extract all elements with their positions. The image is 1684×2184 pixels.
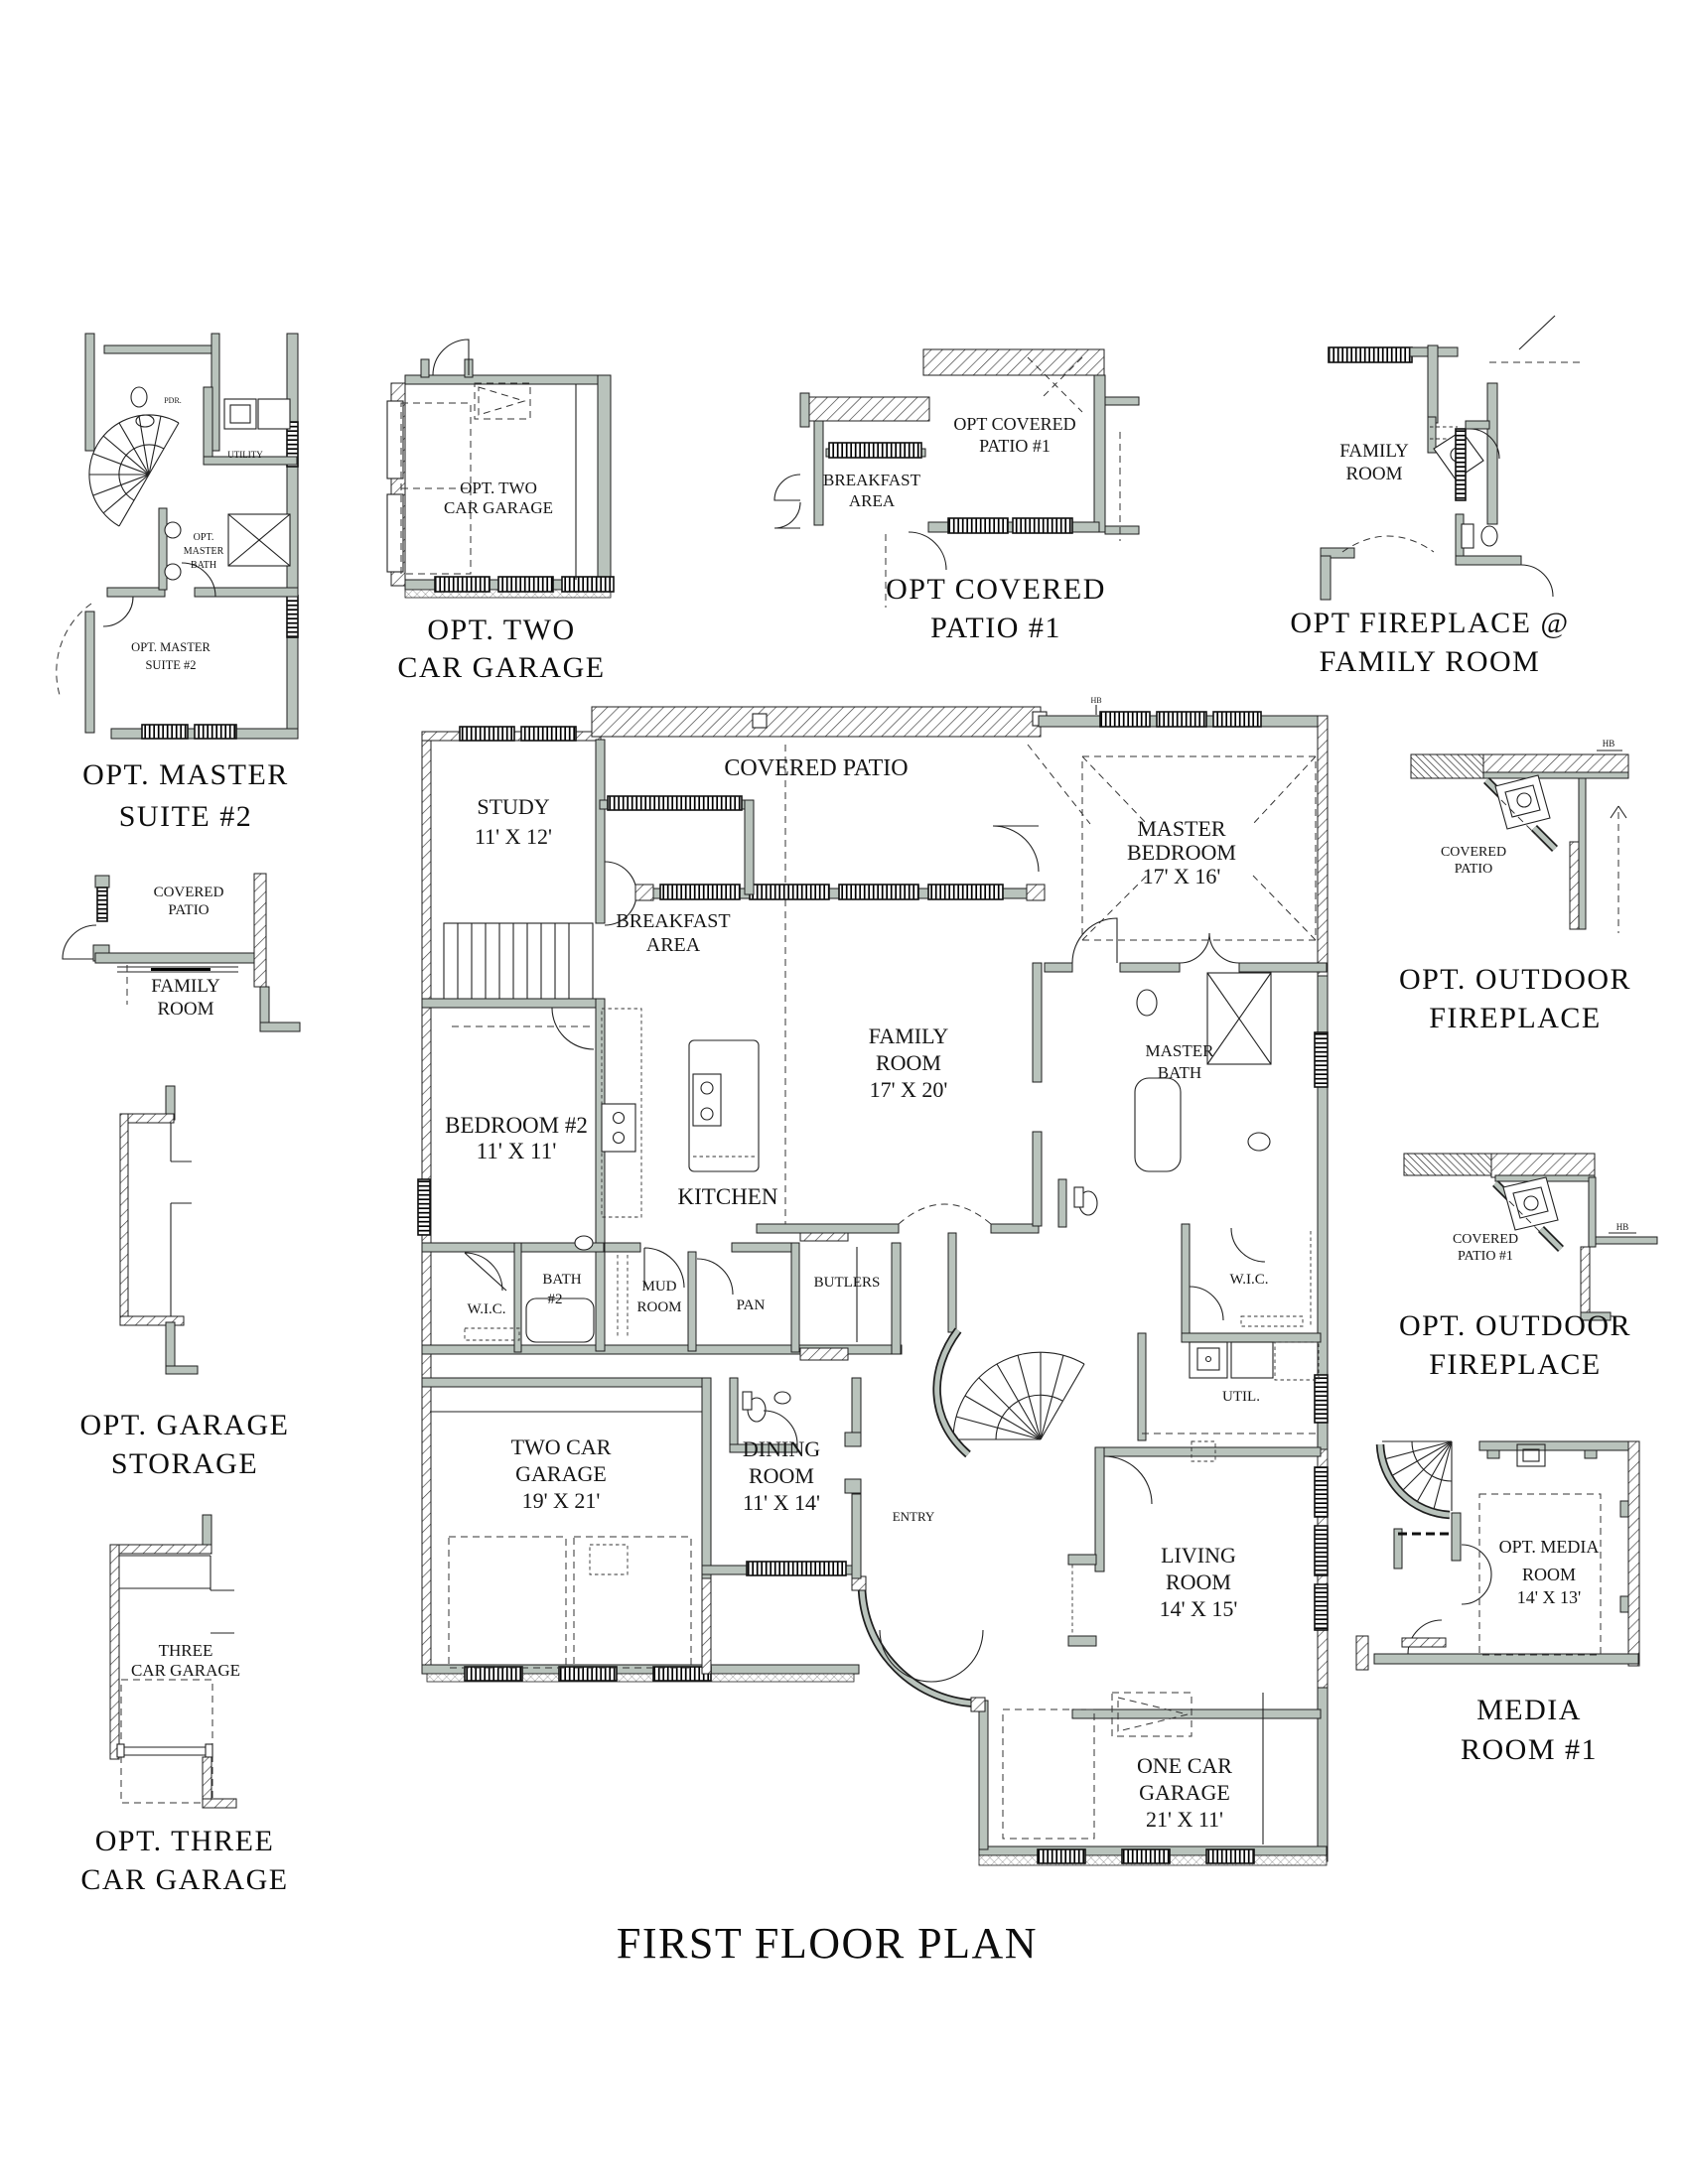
room-dims-opt-media-room: 14' X 13' bbox=[1517, 1587, 1582, 1607]
opt-two-car-garage-plan: OPT. TWO CAR GARAGE OPT. TWO CAR GARAGE bbox=[387, 340, 614, 684]
caption-opt-fireplace-family-room: FAMILY ROOM bbox=[1320, 645, 1541, 678]
room-label-three-car-garage: CAR GARAGE bbox=[131, 1661, 240, 1680]
room-label-wic: W.I.C. bbox=[1229, 1272, 1268, 1288]
caption-opt-outdoor-fireplace: FIREPLACE bbox=[1429, 1348, 1602, 1381]
opt-outdoor-fireplace-a-walls bbox=[1411, 751, 1628, 933]
covered-patio-family-room-plan: COVERED PATIO FAMILY ROOM bbox=[63, 874, 300, 1031]
floor-plan-sheet: PDR. UTILITY OPT. MASTER BATH OPT. MASTE… bbox=[0, 0, 1684, 2184]
room-label-mud-room: ROOM bbox=[636, 1299, 681, 1315]
room-label-two-car-garage: GARAGE bbox=[515, 1461, 607, 1486]
room-label-breakfast-area: AREA bbox=[849, 491, 896, 510]
room-label-butlers: BUTLERS bbox=[814, 1275, 881, 1291]
room-label-util: UTIL. bbox=[1222, 1389, 1260, 1405]
room-label-pdr: PDR. bbox=[164, 396, 182, 405]
room-label-wic: W.I.C. bbox=[467, 1301, 505, 1317]
room-label-opt-media-room: ROOM bbox=[1522, 1565, 1576, 1584]
room-label-opt-master-bath: BATH bbox=[191, 560, 216, 571]
room-label-one-car-garage: GARAGE bbox=[1139, 1780, 1230, 1805]
room-label-opt-two-car: CAR GARAGE bbox=[444, 498, 553, 517]
caption-opt-garage-storage: STORAGE bbox=[111, 1447, 258, 1480]
hb-marker: HB bbox=[1603, 739, 1615, 749]
room-label-dining-room: DINING bbox=[743, 1436, 820, 1461]
room-label-covered-patio-1: COVERED bbox=[1453, 1232, 1518, 1247]
room-label-entry: ENTRY bbox=[893, 1509, 935, 1524]
room-label-covered-patio: PATIO bbox=[1455, 862, 1492, 877]
room-label-covered-patio: COVERED bbox=[154, 885, 224, 900]
opt-garage-storage-plan: OPT. GARAGE STORAGE bbox=[80, 1086, 290, 1480]
caption-media-room-1: ROOM #1 bbox=[1461, 1733, 1598, 1766]
hb-marker: HB bbox=[1090, 696, 1101, 705]
room-label-living-room: LIVING bbox=[1161, 1543, 1236, 1568]
caption-opt-two-car-garage: OPT. TWO bbox=[427, 614, 575, 646]
opt-outdoor-fireplace-b-plan: HB COVERED PATIO #1 OPT. OUTDOOR FIREPLA… bbox=[1399, 1154, 1657, 1381]
room-label-bath-2: #2 bbox=[548, 1292, 563, 1307]
room-label-opt-master-bath: OPT. bbox=[194, 532, 214, 543]
spiral-stair bbox=[937, 1330, 1084, 1454]
room-label-master-bedroom: BEDROOM bbox=[1127, 840, 1236, 865]
opt-covered-patio-1-plan: OPT COVERED PATIO #1 BREAKFAST AREA OPT … bbox=[774, 349, 1139, 644]
room-dims-one-car-garage: 21' X 11' bbox=[1146, 1807, 1223, 1832]
caption-opt-master-suite-2: OPT. MASTER bbox=[82, 758, 289, 791]
opt-master-suite-2-plan: PDR. UTILITY OPT. MASTER BATH OPT. MASTE… bbox=[57, 334, 298, 833]
room-label-opt-master-suite: SUITE #2 bbox=[145, 658, 196, 672]
sheet-title: FIRST FLOOR PLAN bbox=[617, 1919, 1038, 1968]
room-label-family-room: ROOM bbox=[876, 1050, 941, 1075]
caption-opt-outdoor-fireplace: OPT. OUTDOOR bbox=[1399, 963, 1631, 996]
room-label-family-room: ROOM bbox=[1345, 464, 1402, 484]
room-label-breakfast-area: AREA bbox=[646, 934, 701, 956]
main-plan: HB COVERED PATIO STUDY 11' X 12' BREAKFA… bbox=[418, 696, 1328, 1865]
caption-opt-covered-patio-1: PATIO #1 bbox=[930, 612, 1061, 644]
room-label-opt-covered-patio-1: OPT COVERED bbox=[953, 414, 1075, 434]
room-label-covered-patio: COVERED PATIO bbox=[724, 755, 908, 781]
opt-outdoor-fireplace-a-plan: HB COVERED PATIO OPT. OUTDOOR FIREPLACE bbox=[1399, 739, 1631, 1034]
caption-opt-three-car-garage: CAR GARAGE bbox=[80, 1863, 288, 1896]
caption-opt-covered-patio-1: OPT COVERED bbox=[886, 573, 1106, 606]
room-label-study: STUDY bbox=[477, 794, 549, 819]
room-label-family-room: ROOM bbox=[157, 999, 213, 1020]
caption-opt-master-suite-2: SUITE #2 bbox=[119, 800, 253, 833]
caption-opt-fireplace-family-room: OPT FIREPLACE @ bbox=[1290, 607, 1569, 639]
room-label-bath-2: BATH bbox=[542, 1272, 581, 1288]
room-label-bedroom-2: BEDROOM #2 bbox=[445, 1113, 588, 1138]
caption-opt-three-car-garage: OPT. THREE bbox=[95, 1825, 275, 1857]
caption-opt-garage-storage: OPT. GARAGE bbox=[80, 1409, 290, 1441]
room-dims-bedroom-2: 11' X 11' bbox=[477, 1139, 557, 1163]
opt-garage-storage-walls bbox=[120, 1086, 198, 1374]
hb-marker: HB bbox=[1616, 1222, 1629, 1232]
room-label-covered-patio-1: PATIO #1 bbox=[1458, 1249, 1513, 1264]
opt-fireplace-family-room-plan: FAMILY ROOM OPT FIREPLACE @ FAMILY ROOM bbox=[1290, 316, 1584, 678]
room-label-living-room: ROOM bbox=[1166, 1570, 1231, 1594]
room-label-two-car-garage: TWO CAR bbox=[511, 1434, 612, 1459]
room-label-family-room: FAMILY bbox=[151, 976, 220, 997]
opt-outdoor-fireplace-b-walls bbox=[1404, 1154, 1657, 1320]
room-label-master-bedroom: MASTER bbox=[1137, 816, 1226, 841]
room-dims-family-room: 17' X 20' bbox=[870, 1077, 948, 1102]
room-dims-two-car-garage: 19' X 21' bbox=[522, 1488, 601, 1513]
room-label-breakfast-area: BREAKFAST bbox=[823, 471, 921, 489]
room-label-opt-master-bath: MASTER bbox=[184, 546, 224, 557]
room-label-family-room: FAMILY bbox=[1339, 441, 1409, 462]
room-label-one-car-garage: ONE CAR bbox=[1137, 1753, 1232, 1778]
curved-stair bbox=[1380, 1441, 1452, 1515]
room-label-opt-two-car: OPT. TWO bbox=[460, 478, 537, 497]
room-label-opt-covered-patio-1: PATIO #1 bbox=[979, 436, 1051, 456]
room-label-covered-patio: COVERED bbox=[1441, 845, 1506, 860]
caption-opt-outdoor-fireplace: FIREPLACE bbox=[1429, 1002, 1602, 1034]
room-label-family-room: FAMILY bbox=[869, 1024, 949, 1048]
room-label-kitchen: KITCHEN bbox=[678, 1184, 778, 1209]
room-label-master-bath: MASTER bbox=[1146, 1041, 1215, 1060]
opt-two-car-garage-walls bbox=[387, 340, 614, 598]
room-label-pantry: PAN bbox=[737, 1297, 766, 1313]
room-dims-dining-room: 11' X 14' bbox=[743, 1490, 820, 1515]
caption-media-room-1: MEDIA bbox=[1476, 1694, 1582, 1726]
caption-opt-two-car-garage: CAR GARAGE bbox=[397, 651, 605, 684]
first-floor-plan-drawing: PDR. UTILITY OPT. MASTER BATH OPT. MASTE… bbox=[0, 0, 1684, 2184]
room-label-breakfast-area: BREAKFAST bbox=[616, 910, 730, 932]
room-label-opt-media-room: OPT. MEDIA bbox=[1499, 1537, 1600, 1557]
room-dims-living-room: 14' X 15' bbox=[1160, 1596, 1238, 1621]
room-label-opt-master-suite: OPT. MASTER bbox=[131, 640, 210, 654]
room-label-mud-room: MUD bbox=[641, 1279, 676, 1295]
room-dims-master-bedroom: 17' X 16' bbox=[1143, 864, 1221, 888]
room-dims-study: 11' X 12' bbox=[475, 824, 552, 849]
room-label-three-car-garage: THREE bbox=[159, 1641, 213, 1660]
media-room-1-plan: OPT. MEDIA ROOM 14' X 13' MEDIA ROOM #1 bbox=[1356, 1441, 1639, 1766]
room-label-covered-patio: PATIO bbox=[168, 902, 209, 918]
room-label-utility: UTILITY bbox=[227, 450, 263, 460]
room-label-master-bath: BATH bbox=[1158, 1063, 1201, 1082]
caption-opt-outdoor-fireplace: OPT. OUTDOOR bbox=[1399, 1309, 1631, 1342]
room-label-dining-room: ROOM bbox=[749, 1463, 814, 1488]
opt-three-car-garage-plan: THREE CAR GARAGE OPT. THREE CAR GARAGE bbox=[80, 1515, 288, 1896]
